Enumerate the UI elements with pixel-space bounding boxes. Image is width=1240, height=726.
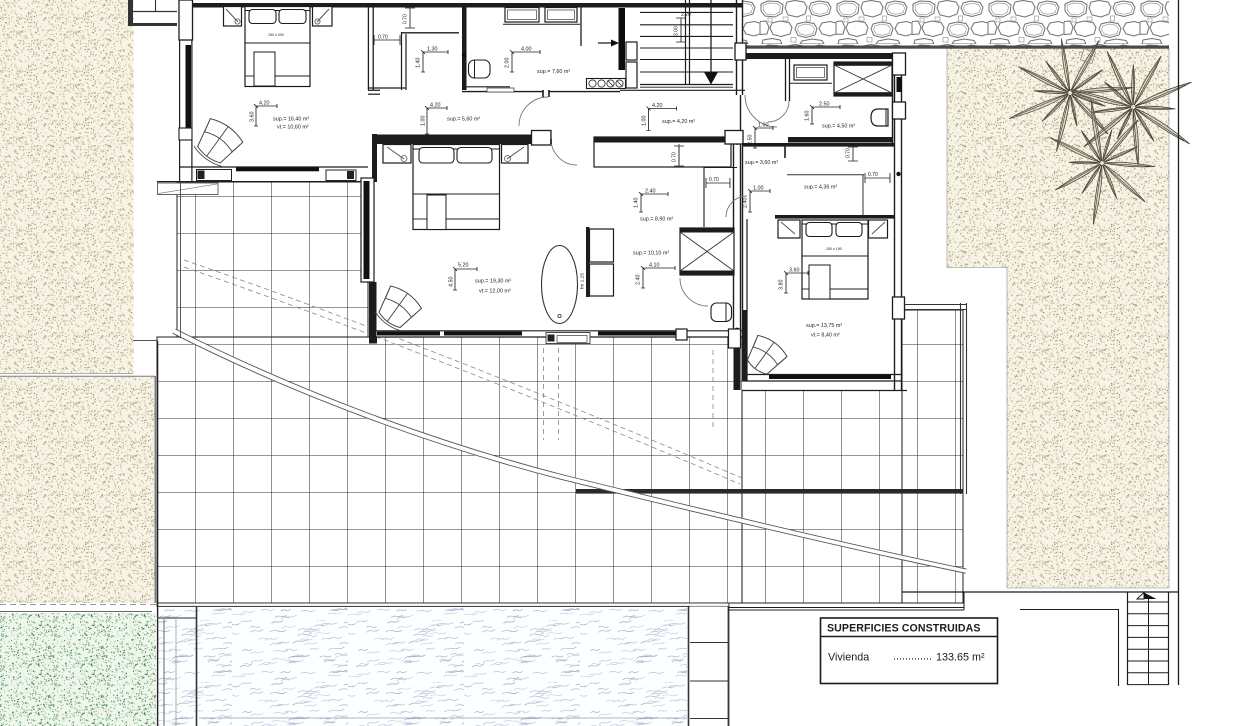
svg-text:sup.= 4,36 m²: sup.= 4,36 m² [804,185,837,191]
svg-text:sup.= 4,50 m²: sup.= 4,50 m² [822,124,855,130]
svg-text:Vivienda: Vivienda [828,652,869,664]
svg-text:1.00: 1.00 [642,116,648,127]
svg-text:2.50: 2.50 [819,102,830,108]
svg-text:2.00: 2.00 [505,58,511,69]
svg-text:3.00: 3.00 [674,26,680,36]
svg-text:sup.= 8,90 m²: sup.= 8,90 m² [640,217,673,223]
svg-text:5.20: 5.20 [458,263,469,269]
svg-text:0.70: 0.70 [709,177,719,183]
svg-text:2.40: 2.40 [743,198,749,209]
svg-text:sup.= 7,60 m²: sup.= 7,60 m² [537,69,570,75]
svg-text:sup.= 19,30 m²: sup.= 19,30 m² [475,279,511,285]
svg-text:2.40: 2.40 [636,275,642,286]
svg-text:3.60: 3.60 [250,112,256,123]
svg-text:0.70: 0.70 [378,35,388,41]
svg-text:1.40: 1.40 [416,58,422,69]
svg-text:150 x 200: 150 x 200 [268,33,284,37]
svg-text:SUPERFICIES CONSTRUIDAS: SUPERFICIES CONSTRUIDAS [827,623,981,635]
svg-text:150 x 190: 150 x 190 [826,247,842,251]
svg-text:0.70: 0.70 [846,148,852,158]
svg-text:sup.= 3,60 m²: sup.= 3,60 m² [745,160,778,166]
svg-text:4.20: 4.20 [652,103,663,109]
svg-text:1.00: 1.00 [758,123,769,129]
svg-text:2.20: 2.20 [681,12,691,18]
svg-text:1.00: 1.00 [421,116,427,127]
svg-text:sup.= 10,10 m²: sup.= 10,10 m² [633,251,669,257]
svg-text:133.65 m²: 133.65 m² [936,652,985,664]
svg-text:3.80: 3.80 [779,280,785,291]
svg-text:4.10: 4.10 [649,263,660,269]
svg-text:vt.= 12,00 m²: vt.= 12,00 m² [479,289,511,295]
svg-text:vt.= 10,60 m²: vt.= 10,60 m² [277,125,309,131]
svg-text:0.70: 0.70 [868,172,878,178]
svg-text:sup.= 5,60 m²: sup.= 5,60 m² [447,117,480,123]
svg-text:0.70: 0.70 [403,14,409,24]
svg-text:sup.= 4,20 m²: sup.= 4,20 m² [662,119,695,125]
svg-text:2.40: 2.40 [645,189,656,195]
svg-text:1.00: 1.00 [753,186,764,192]
svg-text:0.70: 0.70 [672,152,678,162]
svg-text:2.50: 2.50 [748,135,754,146]
svg-text:1.60: 1.60 [805,111,811,122]
svg-text:1.30: 1.30 [427,47,438,53]
svg-text:sup.= 16,40 m²: sup.= 16,40 m² [273,117,309,123]
svg-text:.............: ............. [893,651,932,663]
svg-text:1.40: 1.40 [634,198,640,209]
svg-text:4.50: 4.50 [449,277,455,288]
svg-text:fm 1.25: fm 1.25 [580,273,586,289]
svg-text:4.20: 4.20 [430,103,441,109]
svg-text:sup.= 13,75 m²: sup.= 13,75 m² [806,323,842,329]
svg-text:3.60: 3.60 [789,268,800,274]
svg-text:4.20: 4.20 [259,101,270,107]
svg-text:vt.= 8,40 m²: vt.= 8,40 m² [811,333,840,339]
svg-text:4.00: 4.00 [521,47,532,53]
